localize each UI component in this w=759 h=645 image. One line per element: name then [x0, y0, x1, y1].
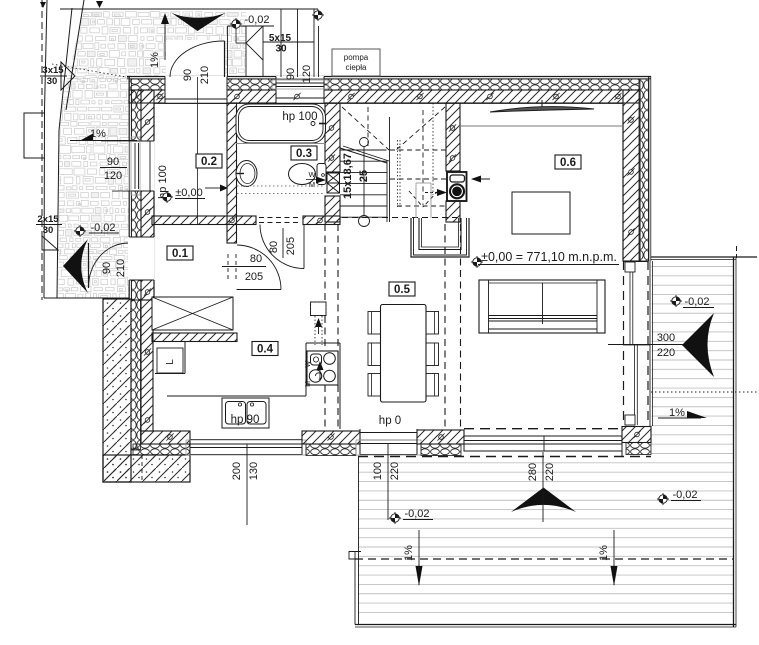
svg-text:90: 90 — [107, 156, 119, 168]
svg-text:ciepła: ciepła — [346, 63, 367, 72]
svg-text:0.3: 0.3 — [296, 148, 312, 160]
svg-text:90: 90 — [182, 69, 194, 81]
svg-text:hp 0: hp 0 — [379, 415, 401, 427]
svg-text:2x15: 2x15 — [37, 214, 59, 225]
svg-text:0.6: 0.6 — [560, 157, 576, 169]
svg-text:205: 205 — [245, 271, 263, 283]
svg-text:80: 80 — [268, 241, 280, 253]
svg-text:W: W — [308, 170, 316, 179]
svg-text:30: 30 — [47, 76, 58, 87]
svg-text:205: 205 — [285, 237, 297, 255]
svg-text:100: 100 — [372, 462, 384, 480]
svg-text:L: L — [165, 359, 176, 365]
svg-text:-0,02: -0,02 — [672, 489, 697, 501]
svg-text:1%: 1% — [598, 545, 610, 561]
svg-text:220: 220 — [389, 462, 401, 480]
svg-text:5x15: 5x15 — [269, 33, 292, 44]
svg-text:210: 210 — [115, 259, 127, 277]
svg-text:1%: 1% — [669, 407, 685, 419]
svg-text:130: 130 — [248, 462, 260, 480]
svg-text:±0,00: ±0,00 — [175, 187, 202, 199]
svg-text:0.2: 0.2 — [201, 156, 217, 168]
svg-text:-0,02: -0,02 — [684, 296, 709, 308]
svg-text:90: 90 — [101, 262, 113, 274]
svg-text:30: 30 — [43, 225, 54, 236]
svg-text:25: 25 — [358, 170, 370, 182]
svg-text:210: 210 — [199, 66, 211, 84]
svg-text:300: 300 — [657, 332, 675, 344]
svg-text:280: 280 — [527, 463, 539, 481]
svg-text:120: 120 — [301, 65, 313, 83]
svg-text:90: 90 — [285, 68, 297, 80]
svg-text:80: 80 — [250, 253, 262, 265]
svg-text:0.5: 0.5 — [394, 284, 411, 296]
svg-text:120: 120 — [104, 170, 122, 182]
svg-text:220: 220 — [657, 347, 675, 359]
svg-text:30: 30 — [275, 44, 287, 55]
svg-text:M: M — [309, 180, 315, 189]
svg-text:hp 90: hp 90 — [231, 414, 260, 426]
svg-text:0.4: 0.4 — [257, 344, 274, 356]
svg-text:pompa: pompa — [344, 53, 369, 62]
svg-text:200: 200 — [231, 462, 243, 480]
svg-text:±0,00 = 771,10 m.n.p.m.: ±0,00 = 771,10 m.n.p.m. — [481, 250, 617, 264]
svg-text:220: 220 — [544, 463, 556, 481]
svg-text:-0,02: -0,02 — [90, 222, 115, 234]
svg-text:1%: 1% — [149, 52, 161, 68]
svg-text:-0,02: -0,02 — [404, 508, 429, 520]
svg-text:1%: 1% — [403, 545, 415, 561]
svg-text:-0,02: -0,02 — [244, 14, 269, 26]
svg-text:15x18,67: 15x18,67 — [342, 153, 354, 199]
svg-text:M: M — [305, 381, 312, 387]
svg-text:W: W — [305, 360, 312, 367]
svg-text:0.1: 0.1 — [172, 248, 189, 260]
